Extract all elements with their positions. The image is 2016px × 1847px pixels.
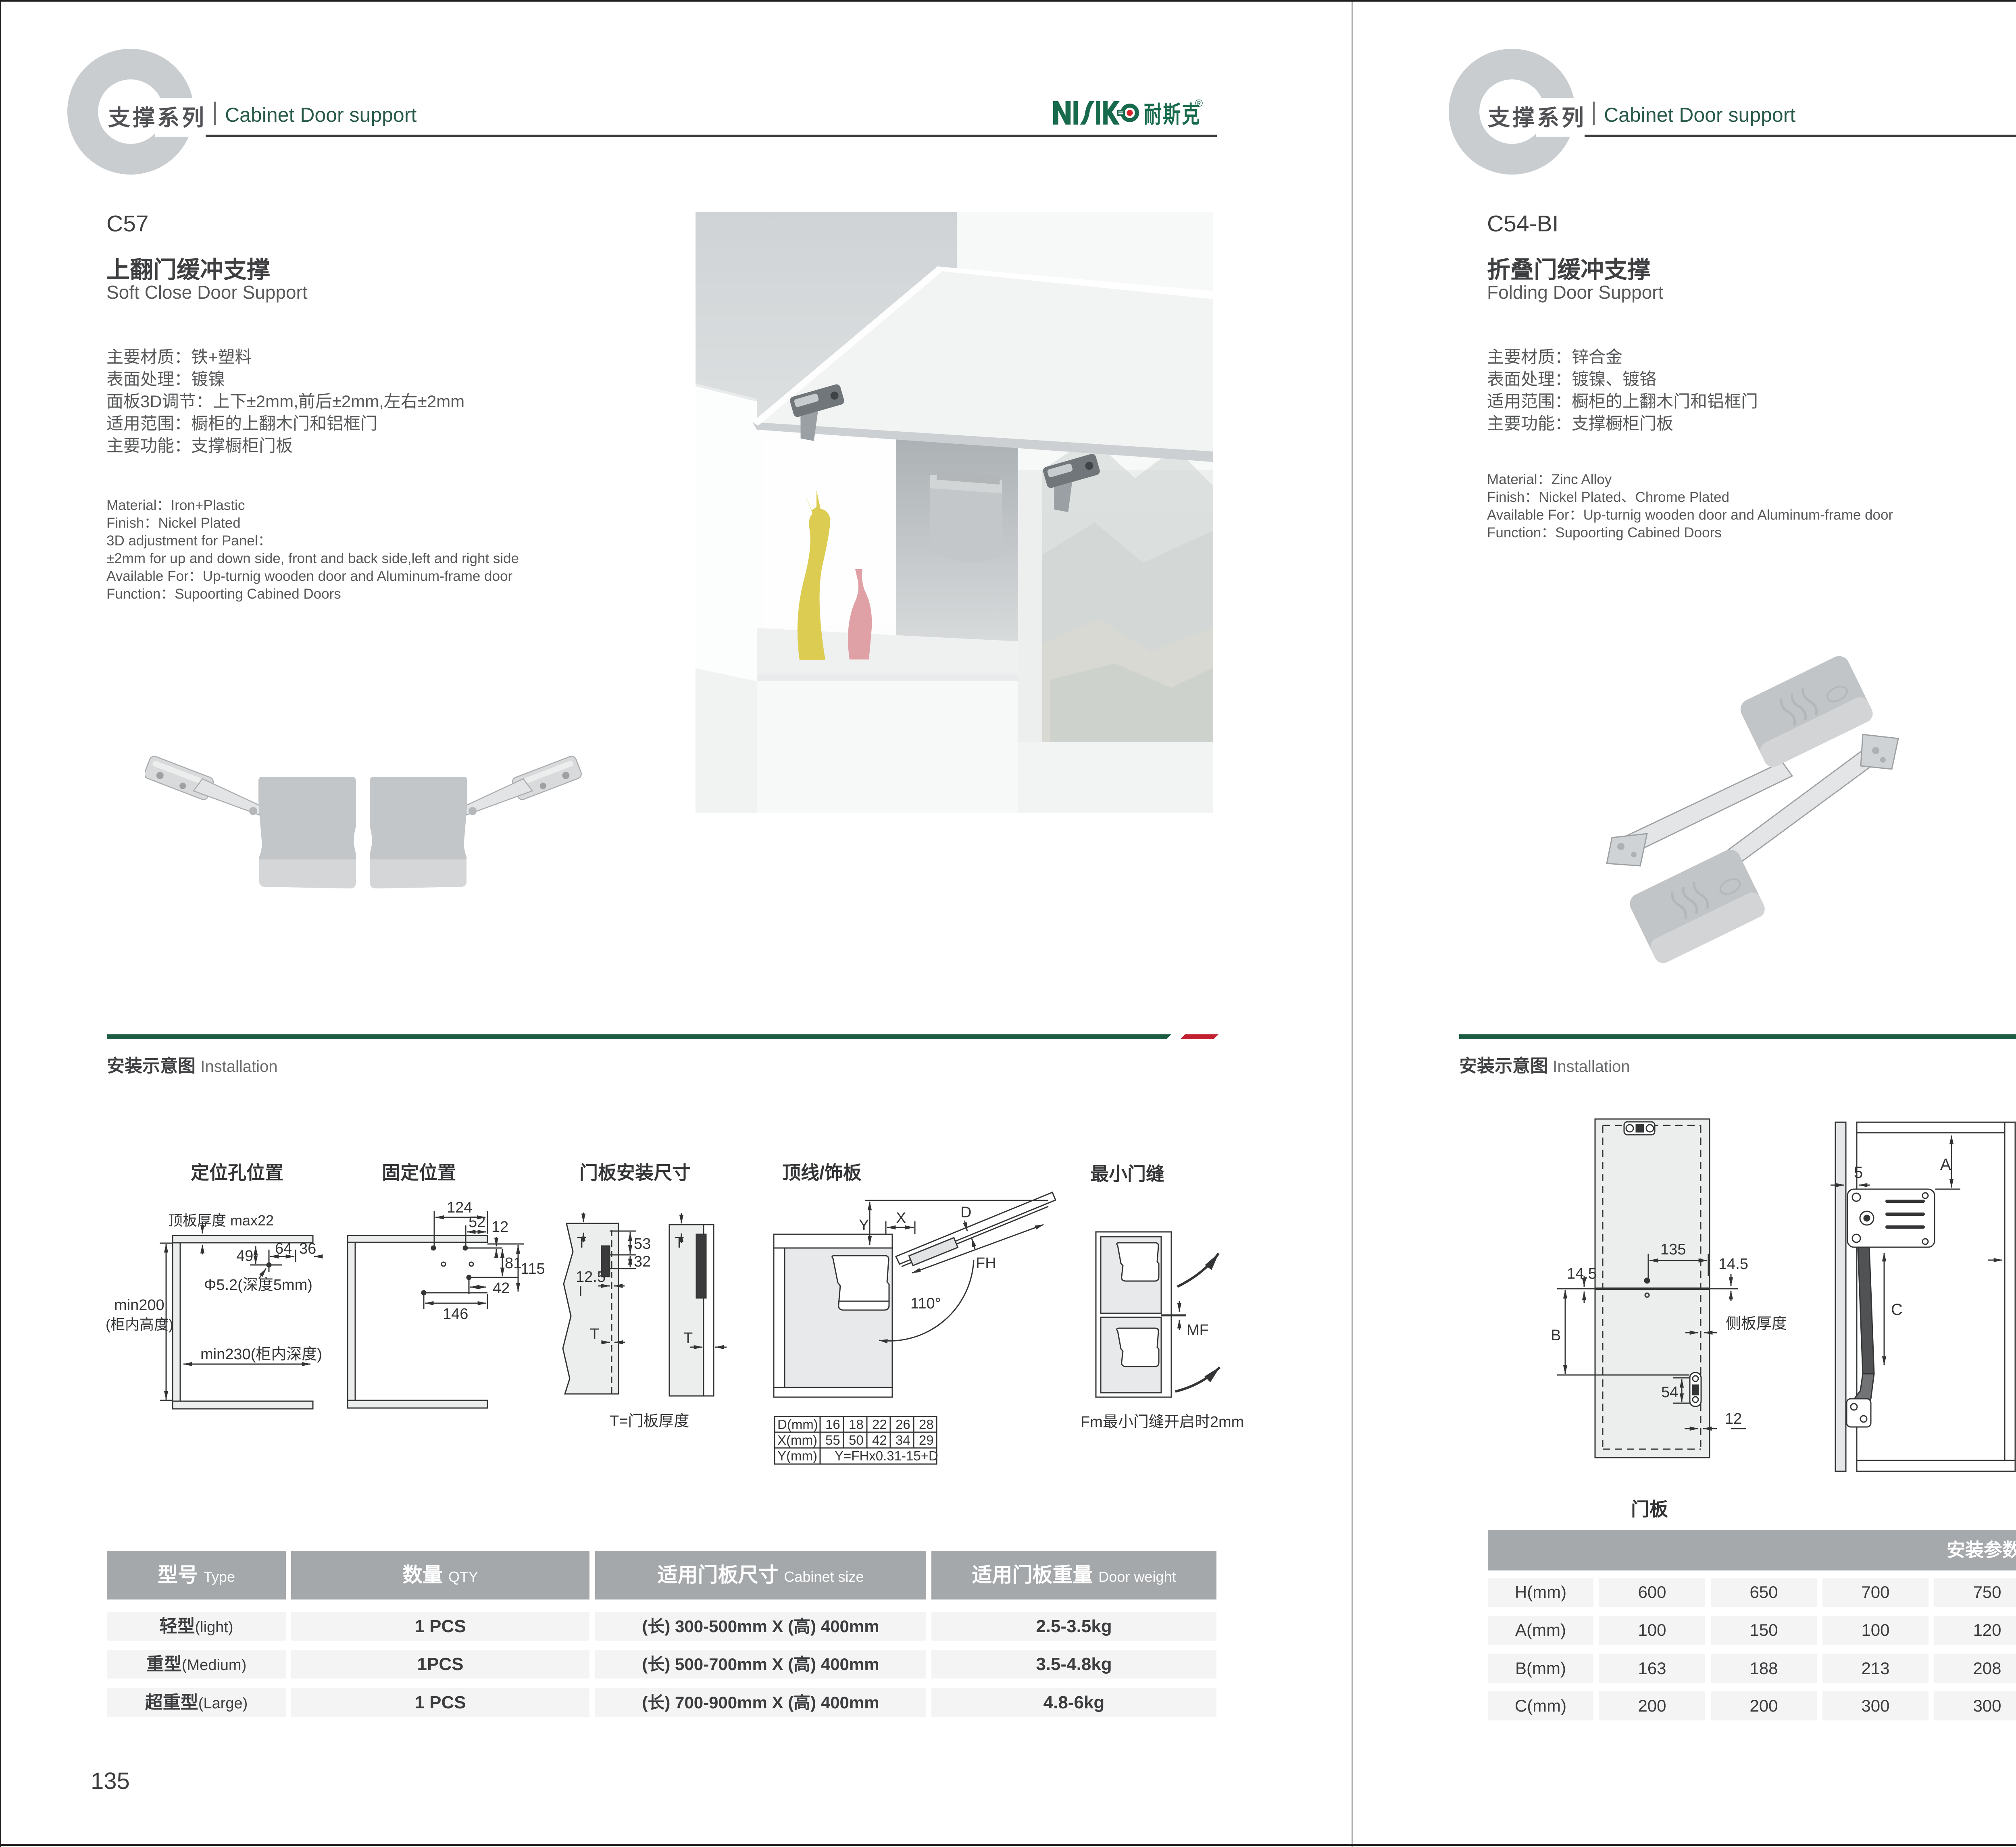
svg-text:Fm最小门缝开启时2mm: Fm最小门缝开启时2mm xyxy=(1081,1414,1244,1431)
svg-text:门板安装尺寸: 门板安装尺寸 xyxy=(579,1162,691,1183)
svg-text:门板: 门板 xyxy=(1631,1499,1668,1520)
svg-text:D(mm): D(mm) xyxy=(777,1417,818,1432)
svg-text:D: D xyxy=(960,1204,971,1221)
svg-text:14.5: 14.5 xyxy=(1567,1265,1597,1282)
svg-text:49: 49 xyxy=(236,1248,253,1265)
svg-text:12: 12 xyxy=(492,1219,508,1235)
svg-text:Y(mm): Y(mm) xyxy=(777,1448,817,1463)
svg-text:FH: FH xyxy=(976,1255,996,1272)
svg-text:最小门缝: 最小门缝 xyxy=(1090,1163,1164,1184)
svg-text:55: 55 xyxy=(825,1433,840,1448)
svg-text:16: 16 xyxy=(825,1417,840,1432)
svg-text:28: 28 xyxy=(919,1417,934,1432)
svg-text:81: 81 xyxy=(505,1255,522,1272)
svg-text:Y: Y xyxy=(859,1217,869,1234)
svg-text:34: 34 xyxy=(896,1433,910,1448)
svg-text:®: ® xyxy=(1195,100,1203,109)
svg-text:T: T xyxy=(675,1234,684,1251)
svg-text:50: 50 xyxy=(849,1433,864,1448)
svg-text:B: B xyxy=(1551,1327,1561,1344)
svg-text:36: 36 xyxy=(299,1240,316,1257)
svg-text:侧板厚度: 侧板厚度 xyxy=(1726,1315,1787,1332)
svg-text:Φ5.2(深度5mm): Φ5.2(深度5mm) xyxy=(204,1277,312,1294)
svg-text:T: T xyxy=(590,1326,599,1343)
svg-text:115: 115 xyxy=(521,1260,545,1277)
svg-text:定位孔位置: 定位孔位置 xyxy=(191,1162,283,1183)
svg-text:32: 32 xyxy=(634,1253,651,1270)
svg-text:顶线/饰板: 顶线/饰板 xyxy=(782,1162,862,1183)
svg-text:26: 26 xyxy=(896,1417,910,1432)
svg-text:29: 29 xyxy=(919,1433,934,1448)
svg-text:12: 12 xyxy=(1725,1410,1742,1427)
svg-text:110°: 110° xyxy=(910,1295,941,1312)
svg-text:146: 146 xyxy=(443,1306,468,1323)
svg-text:18: 18 xyxy=(849,1417,864,1432)
svg-text:MF: MF xyxy=(1187,1322,1209,1339)
svg-text:Y=FHx0.31-15+D: Y=FHx0.31-15+D xyxy=(835,1448,938,1463)
svg-text:T=门板厚度: T=门板厚度 xyxy=(610,1413,689,1430)
svg-text:C: C xyxy=(1891,1301,1903,1319)
svg-text:42: 42 xyxy=(493,1280,510,1297)
svg-text:42: 42 xyxy=(872,1433,887,1448)
svg-text:54: 54 xyxy=(1661,1384,1678,1401)
svg-text:52: 52 xyxy=(469,1214,485,1231)
svg-text:X(mm): X(mm) xyxy=(777,1433,817,1448)
svg-text:固定位置: 固定位置 xyxy=(382,1162,456,1183)
svg-text:53: 53 xyxy=(634,1235,651,1252)
svg-text:X: X xyxy=(896,1210,906,1227)
svg-text:12.5: 12.5 xyxy=(576,1269,606,1285)
svg-text:顶板厚度 max22: 顶板厚度 max22 xyxy=(168,1212,274,1229)
svg-text:(柜内高度): (柜内高度) xyxy=(106,1316,173,1333)
svg-text:min230(柜内深度): min230(柜内深度) xyxy=(200,1346,322,1363)
svg-text:64: 64 xyxy=(275,1240,292,1257)
svg-text:min200: min200 xyxy=(114,1297,165,1314)
svg-text:14.5: 14.5 xyxy=(1718,1256,1748,1273)
svg-text:耐斯克: 耐斯克 xyxy=(1144,101,1201,127)
svg-text:22: 22 xyxy=(872,1417,887,1432)
svg-text:5: 5 xyxy=(1854,1164,1863,1181)
svg-text:T: T xyxy=(577,1234,586,1251)
svg-text:T: T xyxy=(683,1330,693,1347)
svg-text:A: A xyxy=(1940,1156,1951,1173)
svg-text:135: 135 xyxy=(1660,1241,1686,1258)
